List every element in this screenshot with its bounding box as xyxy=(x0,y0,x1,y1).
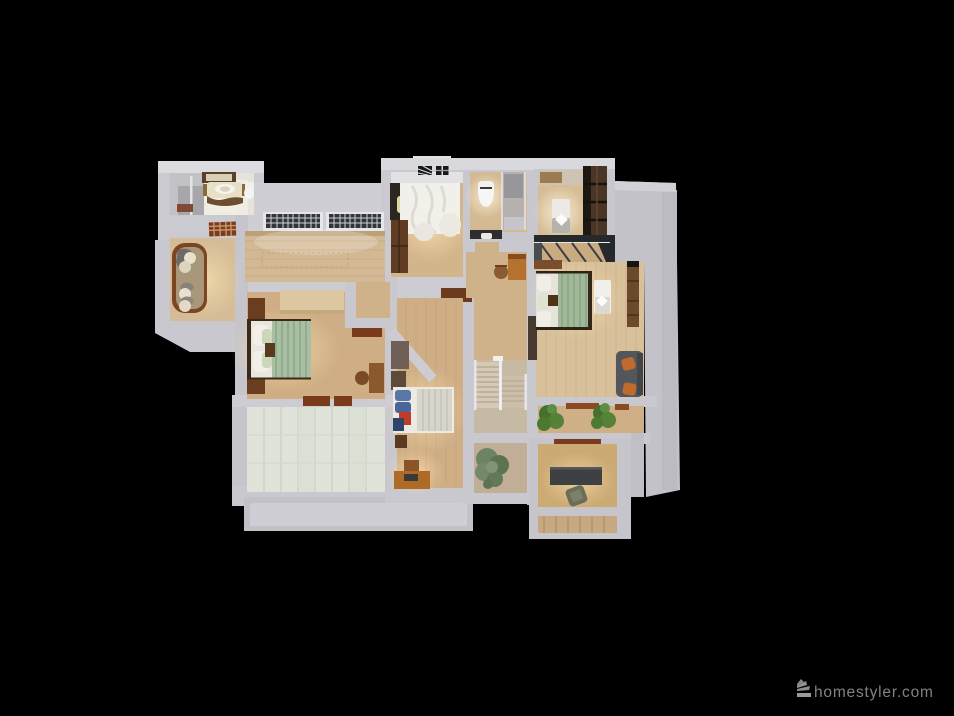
svg-text:homestyler.com: homestyler.com xyxy=(814,684,934,701)
